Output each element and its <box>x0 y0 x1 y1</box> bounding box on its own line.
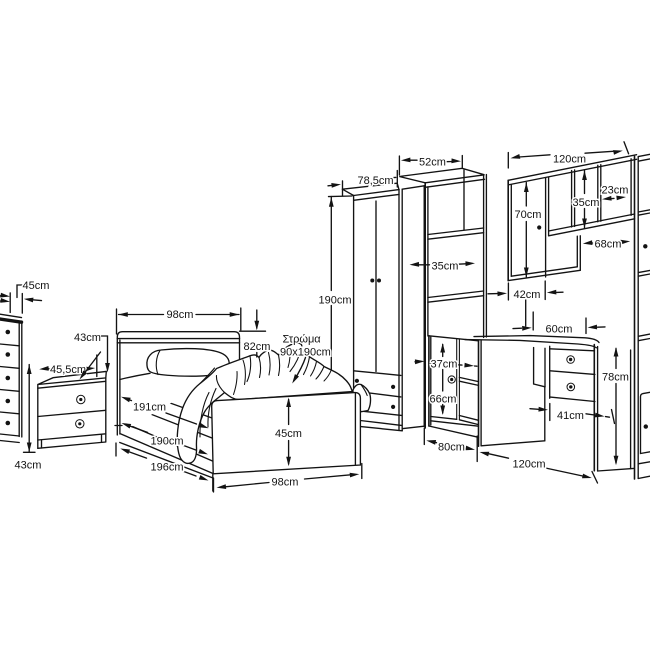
svg-text:82cm: 82cm <box>244 341 271 353</box>
svg-text:70cm: 70cm <box>515 209 542 221</box>
svg-text:45cm: 45cm <box>23 280 50 292</box>
svg-text:191cm: 191cm <box>133 401 166 413</box>
svg-text:Στρώμα: Στρώμα <box>283 334 322 346</box>
svg-text:196cm: 196cm <box>151 461 184 473</box>
svg-text:43cm: 43cm <box>15 460 42 472</box>
svg-text:120cm: 120cm <box>513 458 546 470</box>
svg-text:52cm: 52cm <box>419 157 446 169</box>
svg-text:90x190cm: 90x190cm <box>280 346 331 358</box>
svg-text:98cm: 98cm <box>167 309 194 321</box>
svg-text:190cm: 190cm <box>319 295 352 307</box>
svg-text:45,5cm: 45,5cm <box>50 364 86 376</box>
svg-text:43cm: 43cm <box>74 332 101 344</box>
svg-text:190cm: 190cm <box>151 435 184 447</box>
svg-text:60cm: 60cm <box>546 323 573 335</box>
svg-text:98cm: 98cm <box>272 476 299 488</box>
svg-text:66cm: 66cm <box>430 393 457 405</box>
svg-text:80cm: 80cm <box>438 441 465 453</box>
svg-text:78,5cm: 78,5cm <box>358 175 394 187</box>
svg-text:35cm: 35cm <box>432 260 459 272</box>
svg-text:45cm: 45cm <box>275 428 302 440</box>
svg-text:35cm: 35cm <box>573 197 600 209</box>
svg-text:41cm: 41cm <box>557 410 584 422</box>
svg-text:120cm: 120cm <box>553 153 586 165</box>
svg-text:68cm: 68cm <box>595 239 622 251</box>
svg-text:42cm: 42cm <box>514 289 541 301</box>
svg-text:78cm: 78cm <box>602 371 629 383</box>
svg-text:37cm: 37cm <box>431 358 458 370</box>
svg-text:23cm: 23cm <box>602 185 629 197</box>
